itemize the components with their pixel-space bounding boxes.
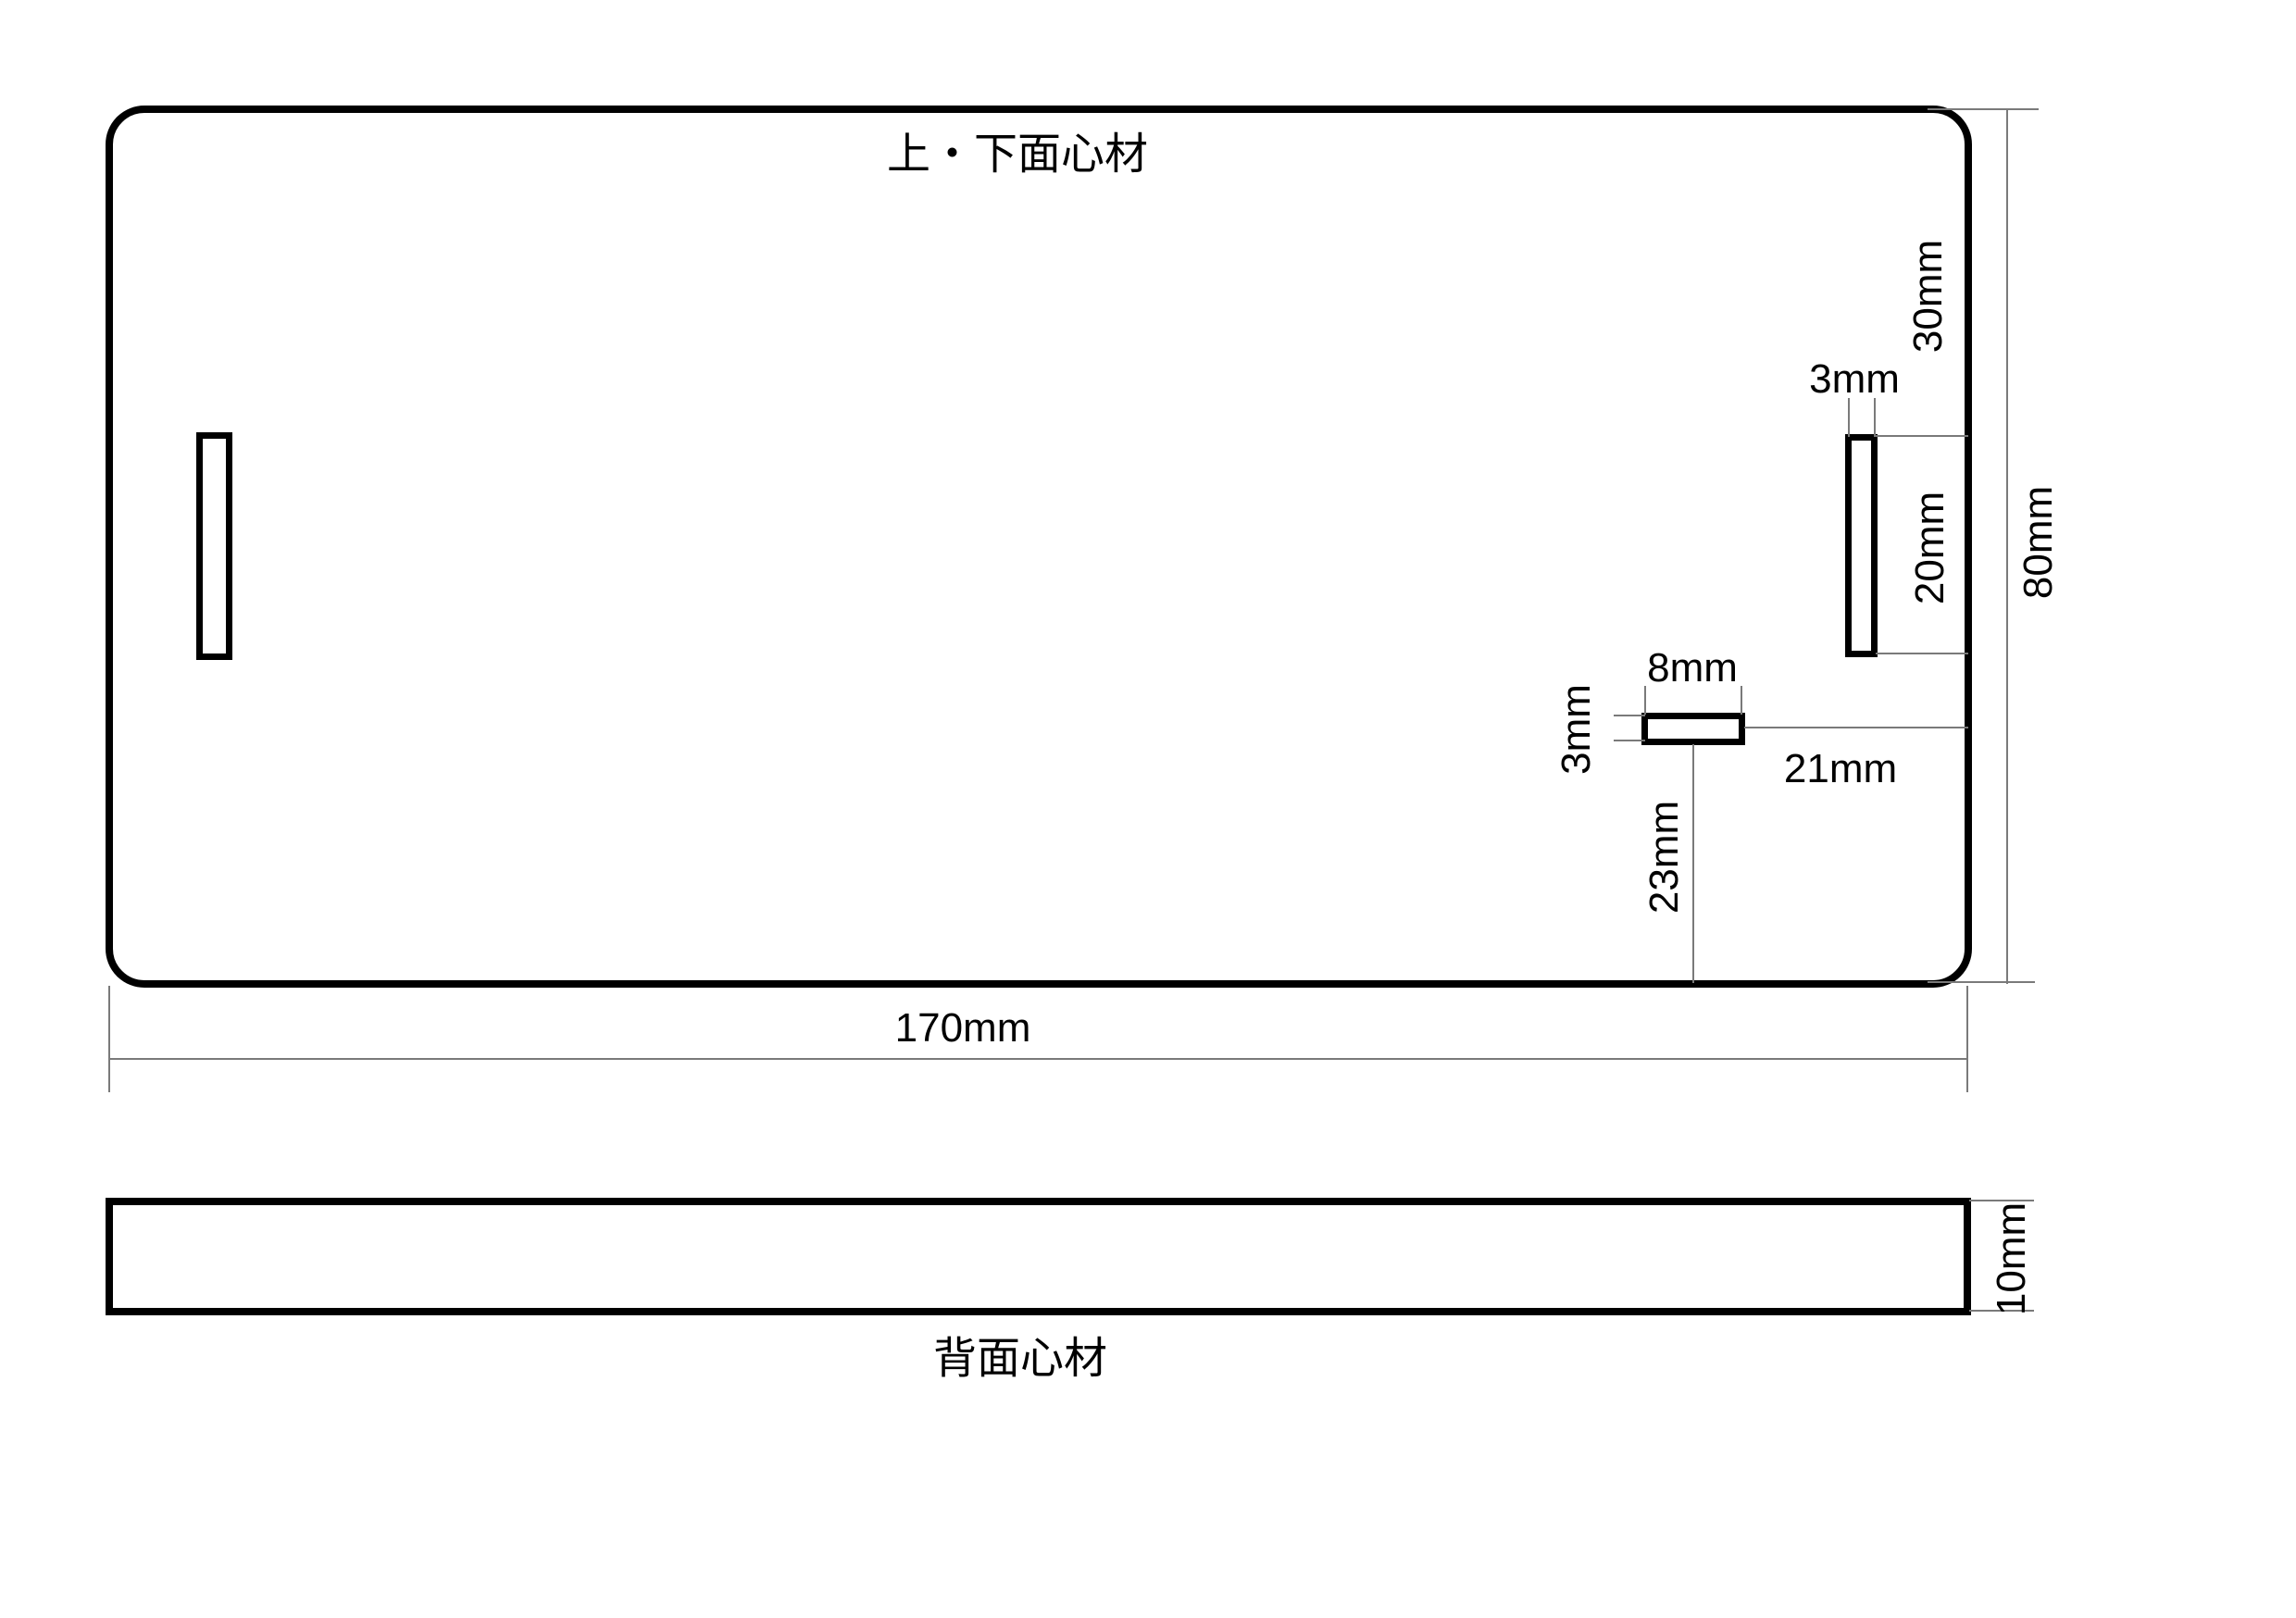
ext-line-bottom-right: [1928, 981, 2035, 983]
top-view-notch-slot: [1641, 713, 1745, 745]
ext-line-bottom-right-plate: [1966, 986, 1968, 1092]
dim-label-170mm: 170mm: [895, 1008, 1031, 1049]
ext-line-slot-width-left: [1848, 398, 1850, 437]
ext-line-notch-left: [1644, 686, 1646, 715]
dim-line-23mm: [1692, 744, 1694, 983]
top-view-left-slot: [196, 432, 232, 660]
dim-label-30mm: 30mm: [1908, 240, 1949, 353]
back-view-plate-outline: [106, 1198, 1971, 1315]
dim-label-80mm: 80mm: [2018, 486, 2059, 599]
tick-line-back-top: [1969, 1200, 2034, 1201]
technical-drawing-canvas: 上・下面心材 80mm 30mm 20mm 3mm 8mm 3mm 21mm 2…: [0, 0, 2296, 1618]
tick-line-notch-bottom: [1614, 740, 1645, 741]
dim-label-23mm: 23mm: [1644, 801, 1685, 914]
back-view-title: 背面心材: [933, 1337, 1107, 1380]
top-view-right-slot: [1845, 434, 1878, 657]
top-view-title: 上・下面心材: [887, 132, 1148, 176]
dim-label-8mm: 8mm: [1647, 648, 1738, 689]
dim-line-slot-top: [1876, 435, 1968, 437]
dim-label-21mm: 21mm: [1784, 749, 1897, 790]
dim-label-10mm: 10mm: [1991, 1202, 2032, 1315]
dim-label-3mm-notch: 3mm: [1556, 684, 1597, 775]
dim-line-slot-bottom: [1876, 653, 1968, 654]
dim-label-3mm-slot: 3mm: [1809, 359, 1900, 400]
dim-line-170mm: [108, 1058, 1968, 1060]
ext-line-top-right: [1928, 108, 2039, 110]
ext-line-notch-right: [1741, 686, 1742, 715]
dim-label-20mm: 20mm: [1910, 492, 1951, 604]
ext-line-slot-width-right: [1874, 398, 1876, 437]
dim-line-80mm: [2006, 108, 2008, 984]
tick-line-notch-top: [1614, 715, 1645, 716]
dim-line-21mm: [1744, 727, 1968, 728]
ext-line-bottom-left-plate: [108, 986, 110, 1092]
